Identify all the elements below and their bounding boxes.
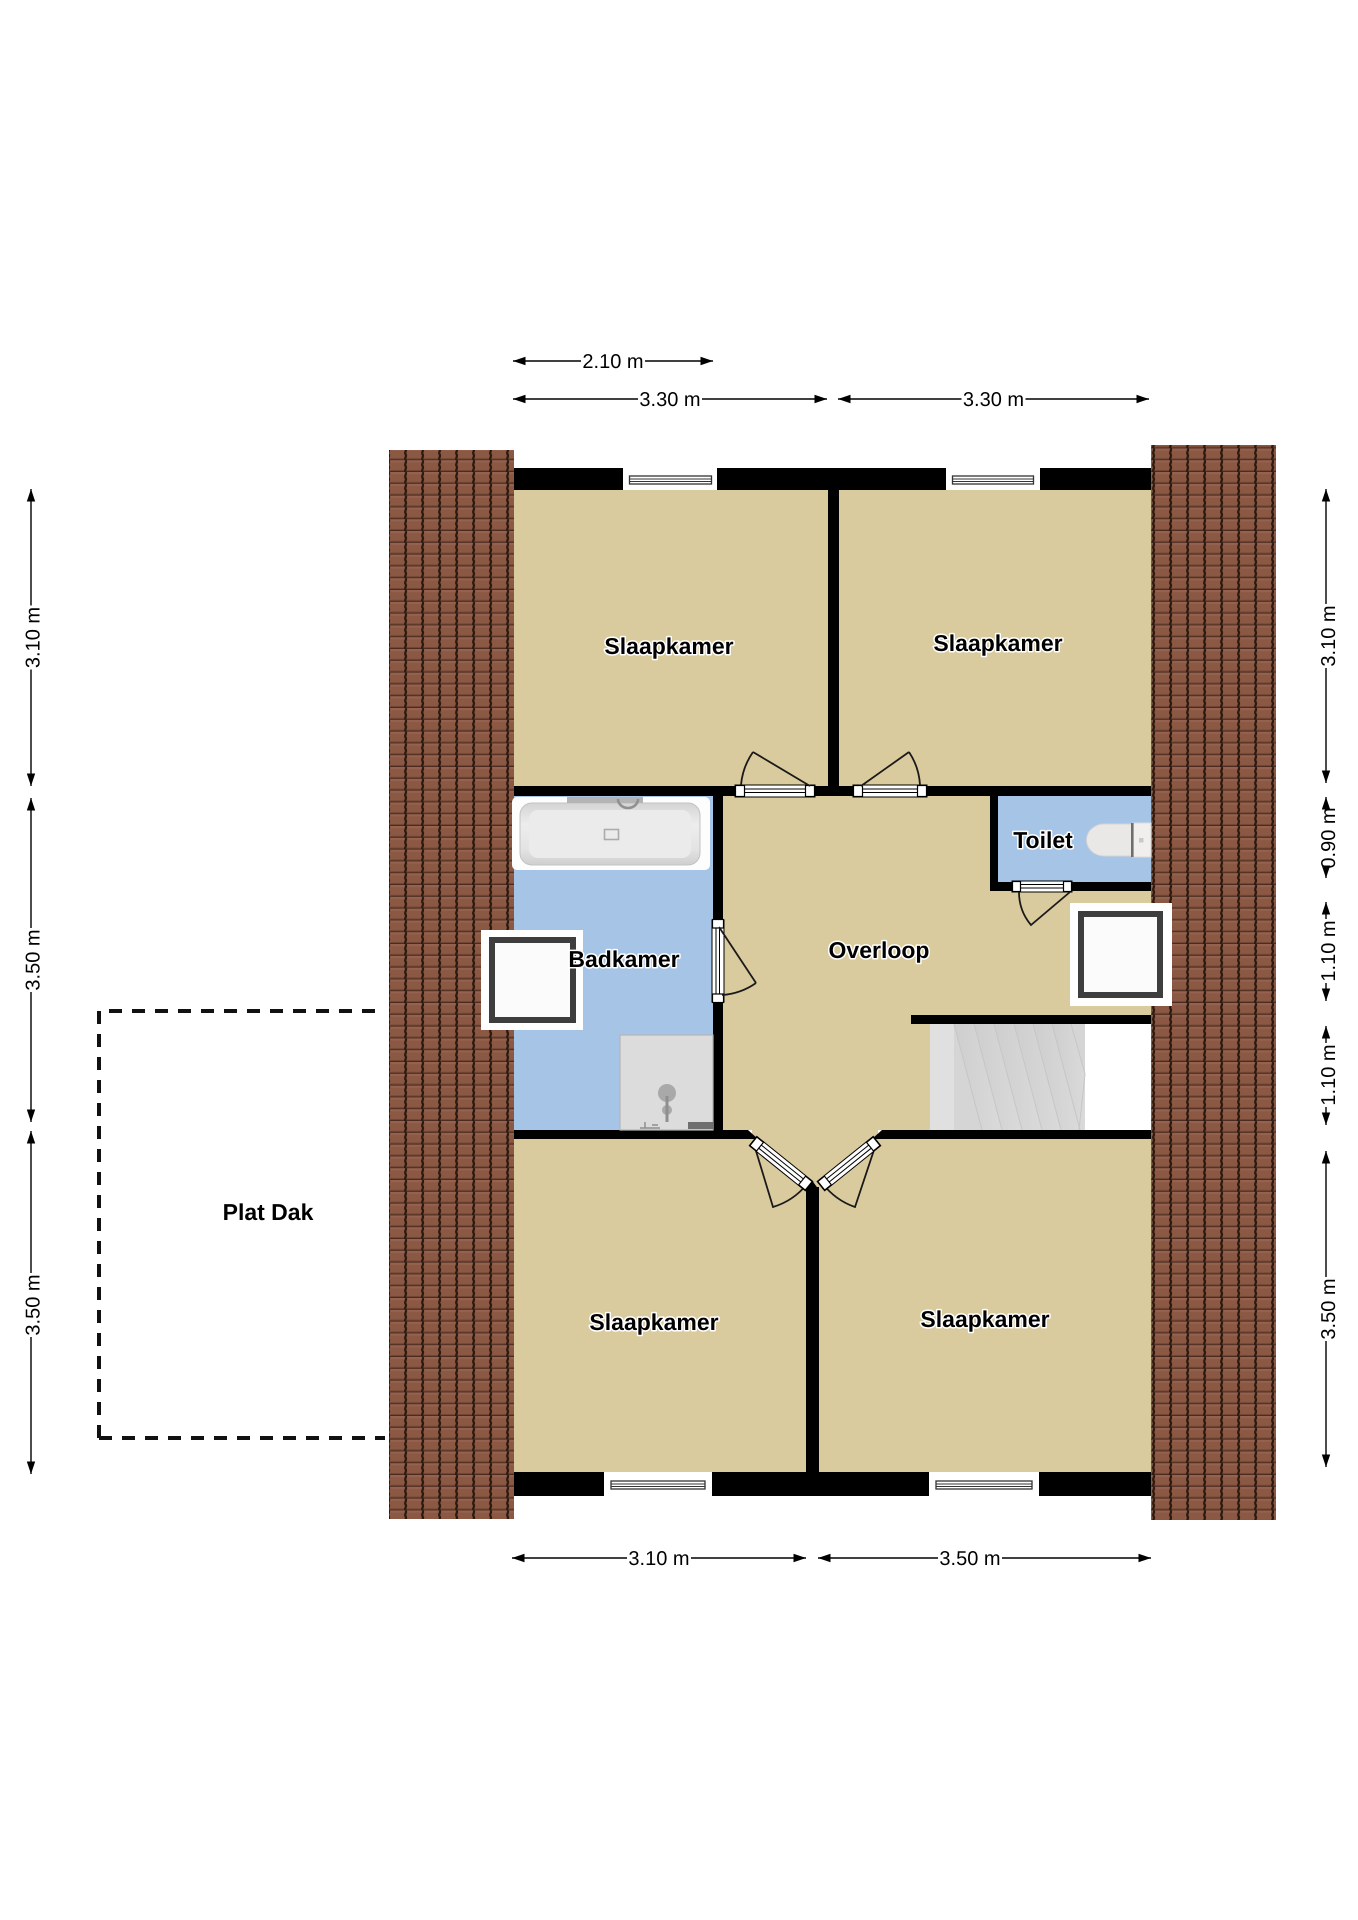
svg-text:3.50 m: 3.50 m — [23, 929, 45, 990]
svg-text:3.10 m: 3.10 m — [1318, 605, 1340, 666]
svg-text:0.90 m: 0.90 m — [1318, 807, 1340, 868]
svg-text:Slaapkamer: Slaapkamer — [589, 1309, 718, 1335]
svg-text:3.10 m: 3.10 m — [628, 1548, 689, 1570]
svg-text:Toilet: Toilet — [1013, 827, 1073, 853]
svg-text:Overloop: Overloop — [829, 937, 930, 963]
svg-text:3.30 m: 3.30 m — [639, 389, 700, 411]
svg-text:3.30 m: 3.30 m — [963, 389, 1024, 411]
svg-text:3.50 m: 3.50 m — [939, 1548, 1000, 1570]
svg-text:3.50 m: 3.50 m — [1318, 1278, 1340, 1339]
svg-text:1.10 m: 1.10 m — [1318, 1044, 1340, 1105]
svg-text:2.10 m: 2.10 m — [582, 351, 643, 373]
svg-text:Slaapkamer: Slaapkamer — [920, 1306, 1049, 1332]
svg-text:1.10 m: 1.10 m — [1318, 920, 1340, 981]
svg-text:3.10 m: 3.10 m — [23, 607, 45, 668]
svg-text:Plat Dak: Plat Dak — [223, 1199, 314, 1225]
svg-text:3.50 m: 3.50 m — [23, 1274, 45, 1335]
svg-text:Slaapkamer: Slaapkamer — [933, 630, 1062, 656]
svg-text:Badkamer: Badkamer — [568, 946, 679, 972]
svg-text:Slaapkamer: Slaapkamer — [604, 633, 733, 659]
